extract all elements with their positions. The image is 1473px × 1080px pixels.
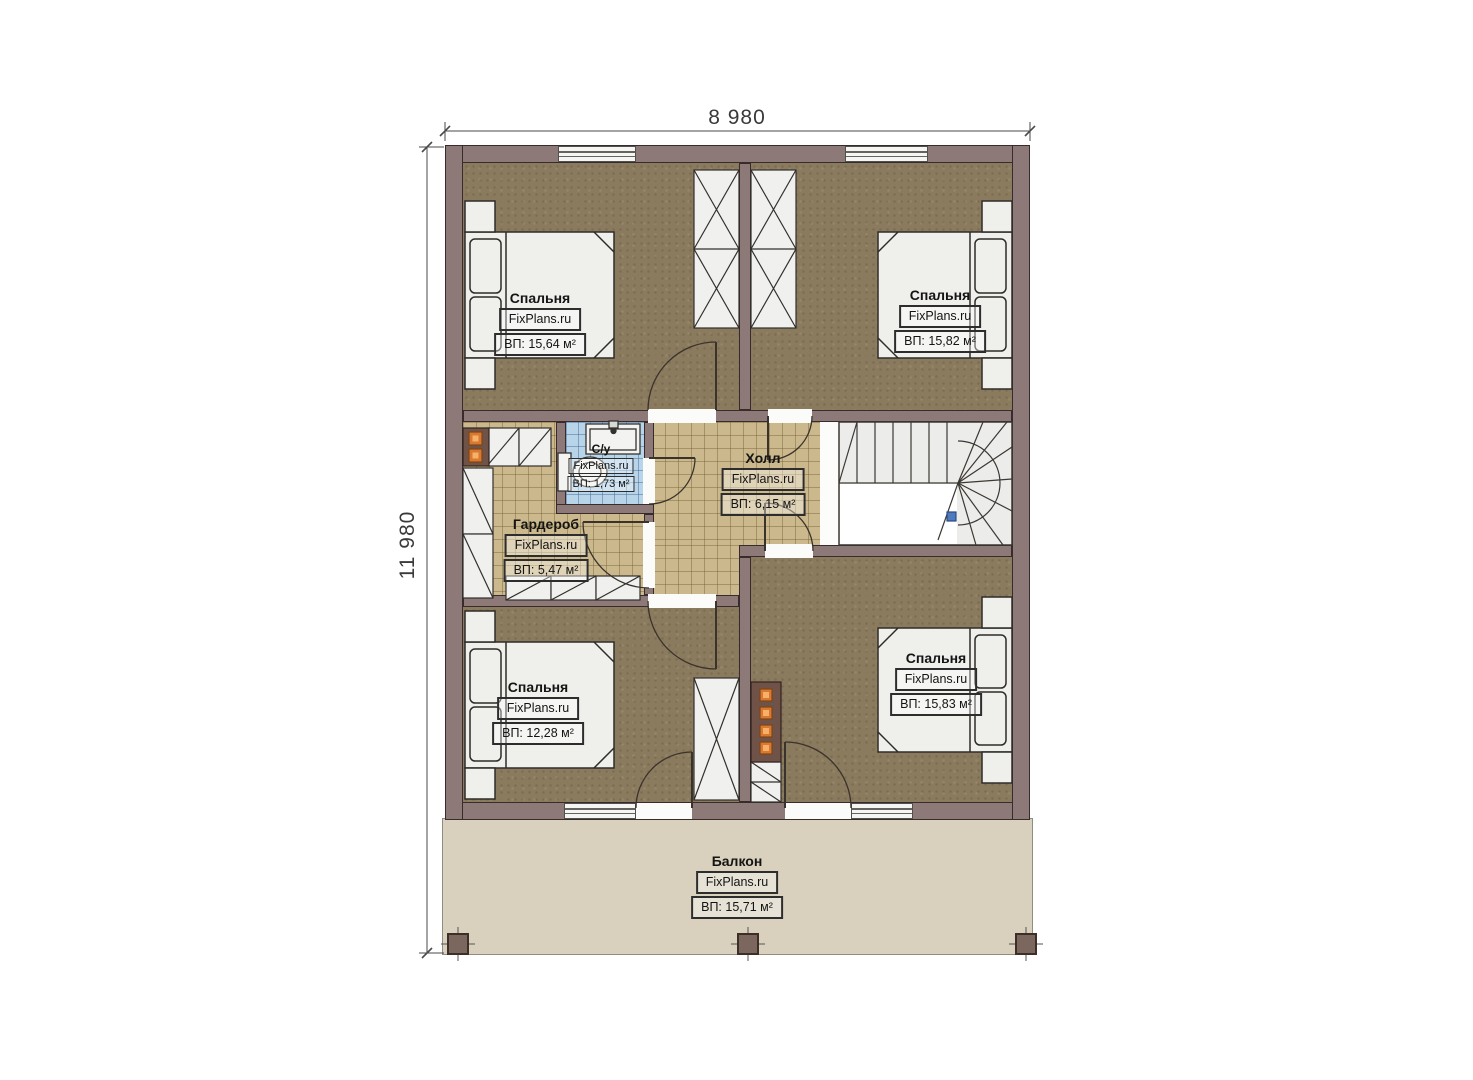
door-opening-wardrobe (643, 522, 655, 588)
room-name: Спальня (906, 650, 966, 666)
room-area: ВП: 1,73 м² (567, 476, 634, 492)
room-name: Спальня (910, 287, 970, 303)
label-hall: Холл FixPlans.ru ВП: 6,15 м² (721, 450, 806, 516)
dimension-top: 8 980 (708, 106, 766, 130)
label-bedroom-bottom-left: Спальня FixPlans.ru ВП: 12,28 м² (492, 679, 584, 745)
window-bottom-left (564, 803, 636, 819)
room-name: Спальня (508, 679, 568, 695)
label-bathroom: С/у FixPlans.ru ВП: 1,73 м² (567, 442, 634, 492)
stair-landing-strip (820, 422, 839, 545)
window-bottom-right (851, 803, 913, 819)
room-area: ВП: 15,83 м² (890, 693, 982, 716)
stair-zone (839, 422, 1012, 545)
window-top-left (558, 146, 636, 162)
label-bedroom-bottom-right: Спальня FixPlans.ru ВП: 15,83 м² (890, 650, 982, 716)
wall-center-bottom (739, 557, 751, 802)
room-name: Холл (745, 450, 780, 466)
wall-bath-bottom (556, 504, 654, 514)
label-balcony: Балкон FixPlans.ru ВП: 15,71 м² (691, 853, 783, 919)
watermark: FixPlans.ru (899, 305, 982, 328)
watermark: FixPlans.ru (722, 468, 805, 491)
door-opening-bedroom-tr (768, 409, 812, 423)
watermark: FixPlans.ru (895, 668, 978, 691)
room-area: ВП: 15,82 м² (894, 330, 986, 353)
dimension-left: 11 980 (396, 511, 420, 580)
watermark: FixPlans.ru (568, 458, 633, 474)
wall-bath-left (556, 422, 566, 514)
door-opening-bedroom-br (765, 544, 813, 558)
hall-floor-lower (652, 545, 739, 595)
wall-mid-horizontal (463, 410, 1012, 422)
wall-center-top (739, 163, 751, 410)
door-opening-bedroom-tl (648, 409, 716, 423)
label-bedroom-top-left: Спальня FixPlans.ru ВП: 15,64 м² (494, 290, 586, 356)
room-area: ВП: 15,64 м² (494, 333, 586, 356)
door-opening-balcony-left (636, 803, 692, 819)
wall-outer-right (1012, 145, 1030, 820)
bedroom-top-left-floor (463, 163, 739, 410)
room-area: ВП: 15,71 м² (691, 896, 783, 919)
door-opening-bedroom-bl (648, 594, 716, 608)
watermark: FixPlans.ru (696, 871, 779, 894)
door-opening-bathroom (643, 458, 655, 504)
label-bedroom-top-right: Спальня FixPlans.ru ВП: 15,82 м² (894, 287, 986, 353)
room-name: Балкон (712, 853, 763, 869)
floor-plan-canvas: Спальня FixPlans.ru ВП: 15,64 м² Спальня… (0, 0, 1473, 1080)
room-name: Гардероб (513, 516, 579, 532)
wall-outer-left (445, 145, 463, 820)
watermark: FixPlans.ru (505, 534, 588, 557)
room-name: Спальня (510, 290, 570, 306)
room-area: ВП: 6,15 м² (721, 493, 806, 516)
room-area: ВП: 5,47 м² (504, 559, 589, 582)
room-name: С/у (592, 442, 611, 456)
watermark: FixPlans.ru (497, 697, 580, 720)
window-top-right (845, 146, 928, 162)
room-area: ВП: 12,28 м² (492, 722, 584, 745)
wall-outer-bottom (445, 802, 1030, 820)
watermark: FixPlans.ru (499, 308, 582, 331)
label-wardrobe: Гардероб FixPlans.ru ВП: 5,47 м² (504, 516, 589, 582)
wall-outer-top (445, 145, 1030, 163)
door-opening-balcony-right (785, 803, 851, 819)
